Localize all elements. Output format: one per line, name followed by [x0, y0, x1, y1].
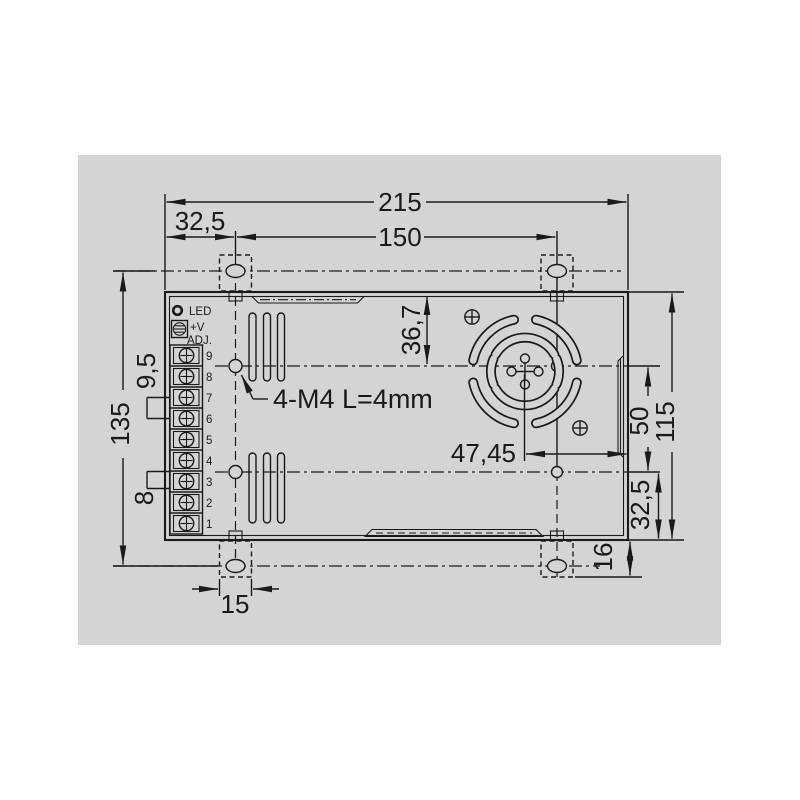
terminal-number: 8: [206, 372, 212, 384]
pot-label-v: +V: [190, 322, 205, 334]
dim-label: 150: [378, 222, 421, 252]
bracket-hole: [226, 265, 245, 278]
dim-label: 135: [105, 402, 135, 445]
dim-label: 32,5: [175, 206, 226, 236]
m4-hole: [229, 466, 242, 479]
fan-screw-icon: [573, 421, 587, 435]
bracket-hole: [226, 560, 245, 573]
led-label: LED: [189, 306, 211, 318]
dim-label: 16: [588, 543, 618, 572]
dim-label: 47,45: [451, 438, 516, 468]
dim-label: 115: [650, 401, 680, 442]
dim-hole-offset-left: 32,5: [167, 206, 235, 237]
terminal-number: 3: [206, 477, 212, 489]
dim-label: 9,5: [131, 353, 161, 389]
mechanical-drawing: 987654321 LED +V ADJ. 215 32,5 150: [0, 0, 800, 800]
mounting-note-label: 4-M4 L=4mm: [273, 384, 433, 414]
terminal-number: 9: [206, 351, 212, 363]
dim-label: 32,5: [625, 480, 655, 531]
terminal-number: 1: [206, 519, 212, 531]
terminal-number: 2: [206, 498, 212, 510]
bracket-hole: [548, 265, 567, 278]
terminal-number: 7: [206, 393, 212, 405]
terminal-number: 6: [206, 414, 212, 426]
terminal-number: 4: [206, 456, 213, 468]
terminal-number: 5: [206, 435, 212, 447]
bracket-hole: [548, 560, 567, 573]
m4-hole: [552, 467, 563, 478]
m4-hole: [229, 360, 242, 373]
dim-label: 215: [378, 187, 421, 217]
fan-screw-icon: [465, 310, 479, 324]
dim-label: 8: [129, 491, 159, 505]
dim-fan-center-from-top: 36,7: [396, 296, 427, 364]
dim-hole-offset-bottom: 32,5: [625, 474, 659, 539]
pot-label-adj: ADJ.: [187, 335, 212, 347]
dim-label: 36,7: [396, 305, 426, 356]
page: 987654321 LED +V ADJ. 215 32,5 150: [0, 0, 800, 800]
dim-label: 15: [221, 589, 250, 619]
